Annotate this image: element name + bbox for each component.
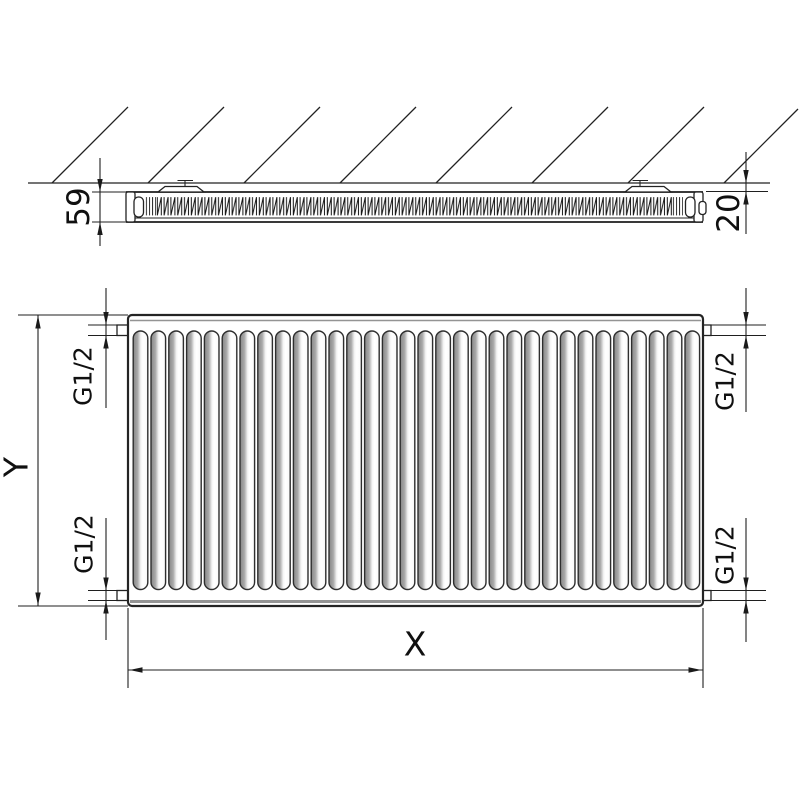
depth-dimension: 59 [61,158,129,246]
rib [471,331,486,590]
rib [347,331,362,590]
rib [311,331,326,590]
width-dim-label: X [404,625,427,664]
mounting-bracket-right [625,180,671,192]
rib [240,331,255,590]
mounting-bracket-left [158,180,204,192]
convector-fins [156,197,672,217]
rib [133,331,148,590]
connection-dim-top-right: G1/2 [710,288,766,412]
technical-drawing: 59 20 Y X [0,0,800,800]
rib [276,331,291,590]
wall-hatching [52,107,798,183]
connection-label-bottom-left: G1/2 [70,514,99,574]
width-dimension: X [128,608,703,688]
wall-distance-dim-label: 20 [711,193,747,232]
wall-distance-dimension: 20 [706,152,768,234]
rib [454,331,469,590]
connection-dim-bottom-left: G1/2 [70,514,119,640]
connection-dim-bottom-right: G1/2 [710,518,766,642]
rib [382,331,397,590]
top-view: 59 20 [28,107,798,246]
rib [418,331,433,590]
rib [596,331,611,590]
rib [151,331,166,590]
depth-dim-label: 59 [61,187,97,226]
rib [685,331,700,590]
rib [525,331,540,590]
rib [436,331,451,590]
rib [293,331,308,590]
end-clip-right [686,197,696,217]
rib [632,331,647,590]
convector-fin-end-right [672,197,683,217]
rib [169,331,184,590]
rib [667,331,682,590]
rib [543,331,558,590]
rib [258,331,273,590]
drawing-canvas: 59 20 Y X [0,0,800,800]
end-tab-right [699,202,706,215]
rib [204,331,219,590]
rib [400,331,415,590]
connection-label-top-left: G1/2 [69,346,98,406]
rib [614,331,629,590]
rib [187,331,202,590]
front-view: Y X G1/2 G1/2 G1/2 [0,288,766,688]
rib [649,331,664,590]
rib [507,331,522,590]
rib [222,331,237,590]
rib [329,331,344,590]
rib [560,331,575,590]
rib [489,331,504,590]
convector-fin-end-left [145,197,156,217]
connection-label-bottom-right: G1/2 [711,525,740,585]
connection-dim-top-left: G1/2 [69,288,119,408]
end-clip-left [134,197,144,217]
height-dim-label: Y [0,456,36,478]
rib [365,331,380,590]
connection-label-top-right: G1/2 [711,351,740,411]
height-dimension: Y [0,315,128,606]
rib [578,331,593,590]
radiator-profile [126,192,706,222]
